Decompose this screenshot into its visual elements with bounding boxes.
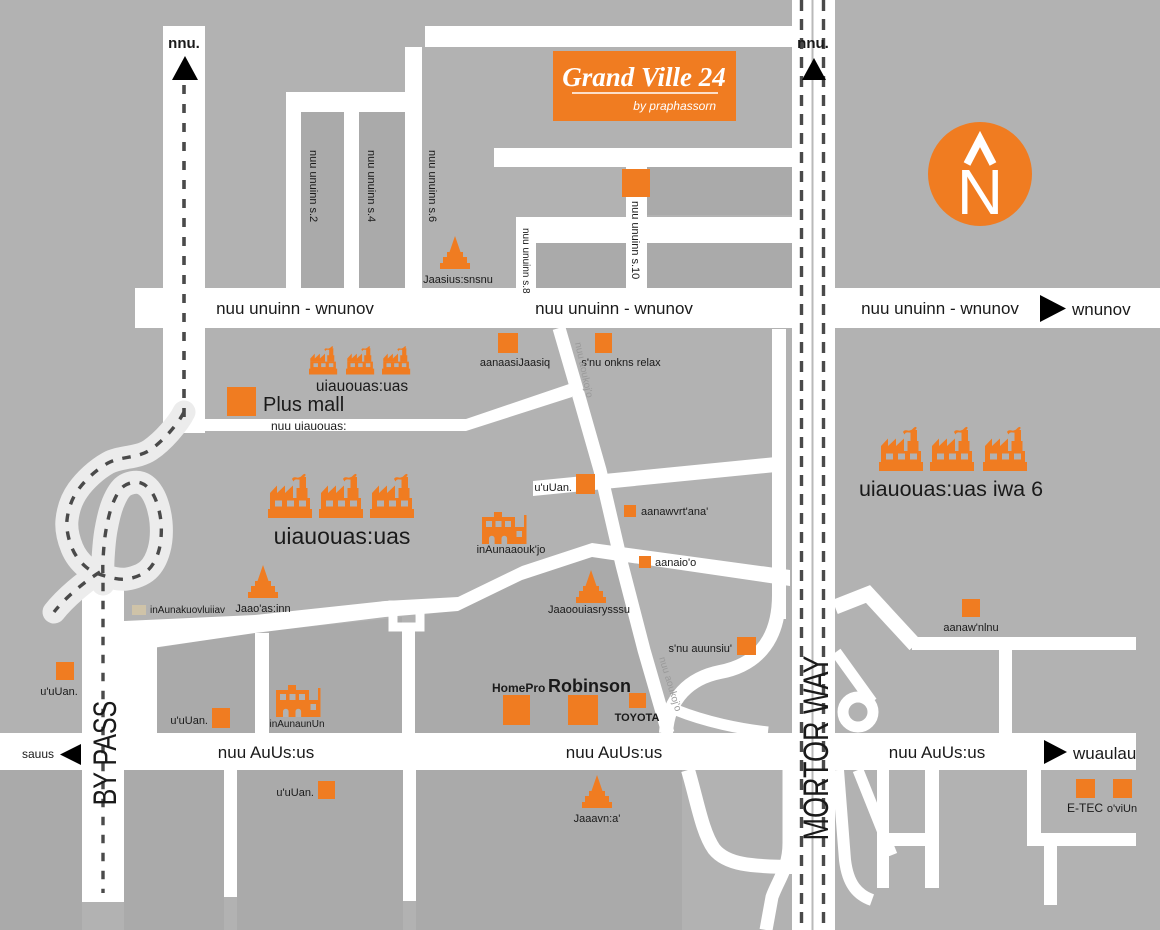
svg-text:nuu AuUs:us: nuu AuUs:us bbox=[218, 743, 314, 762]
svg-text:inAunaaouk'jo: inAunaaouk'jo bbox=[477, 544, 546, 556]
svg-text:uiauouas:uas iwa 6: uiauouas:uas iwa 6 bbox=[859, 477, 1043, 501]
svg-text:aanaw'nlnu: aanaw'nlnu bbox=[943, 622, 998, 634]
svg-text:inAunaunUn: inAunaunUn bbox=[269, 719, 324, 730]
svg-text:Plus mall: Plus mall bbox=[263, 394, 344, 416]
svg-text:nuu uiauouas:: nuu uiauouas: bbox=[271, 419, 346, 433]
svg-text:u'uUan.: u'uUan. bbox=[276, 787, 314, 799]
svg-text:Robinson: Robinson bbox=[548, 676, 631, 696]
svg-text:nuu unuinn s.2: nuu unuinn s.2 bbox=[307, 150, 319, 222]
svg-text:nuu AuUs:us: nuu AuUs:us bbox=[566, 743, 662, 762]
svg-text:u'uUan.: u'uUan. bbox=[170, 715, 208, 727]
svg-text:wuaulau: wuaulau bbox=[1072, 744, 1136, 763]
svg-text:aanaasiJaasiq: aanaasiJaasiq bbox=[480, 357, 550, 369]
svg-text:aanaio'o: aanaio'o bbox=[655, 557, 696, 569]
svg-text:nuu unuinn - wnunov: nuu unuinn - wnunov bbox=[216, 299, 374, 318]
svg-text:N: N bbox=[957, 156, 1003, 228]
svg-text:aanawvrt'ana': aanawvrt'ana' bbox=[641, 506, 708, 518]
svg-text:nnu.: nnu. bbox=[168, 35, 200, 52]
svg-text:nuu unuinn - wnunov: nuu unuinn - wnunov bbox=[861, 299, 1019, 318]
svg-text:u'uUan.: u'uUan. bbox=[534, 482, 572, 494]
svg-text:inAunakuovluiiav: inAunakuovluiiav bbox=[150, 605, 225, 616]
svg-text:o'viUn: o'viUn bbox=[1107, 803, 1137, 815]
svg-text:Jaaoouiasrysssu: Jaaoouiasrysssu bbox=[548, 604, 630, 616]
svg-text:uiauouas:uas: uiauouas:uas bbox=[274, 523, 411, 549]
svg-text:s'nu onkns relax: s'nu onkns relax bbox=[581, 357, 661, 369]
svg-text:by praphassorn: by praphassorn bbox=[633, 99, 716, 113]
svg-text:Jaasius:snsnu: Jaasius:snsnu bbox=[423, 274, 493, 286]
svg-text:nnu.: nnu. bbox=[797, 35, 829, 52]
svg-text:nuu unuinn s.6: nuu unuinn s.6 bbox=[426, 150, 438, 222]
svg-text:Grand Ville 24: Grand Ville 24 bbox=[562, 62, 726, 92]
svg-text:u'uUan.: u'uUan. bbox=[40, 686, 78, 698]
svg-text:nuu unuinn s.8: nuu unuinn s.8 bbox=[520, 228, 531, 294]
svg-text:sauus: sauus bbox=[22, 747, 54, 761]
svg-text:MORTOR WAY: MORTOR WAY bbox=[797, 655, 836, 840]
svg-text:HomePro: HomePro bbox=[492, 681, 545, 695]
svg-text:Jaaavn:a': Jaaavn:a' bbox=[574, 813, 621, 825]
svg-text:nuu unuinn s.4: nuu unuinn s.4 bbox=[365, 150, 377, 222]
svg-text:Jaao'as:inn: Jaao'as:inn bbox=[235, 603, 290, 615]
svg-text:nuu unuinn - wnunov: nuu unuinn - wnunov bbox=[535, 299, 693, 318]
svg-text:nuu unuinn s.10: nuu unuinn s.10 bbox=[629, 201, 641, 279]
svg-text:E-TEC: E-TEC bbox=[1067, 801, 1103, 815]
svg-text:wnunov: wnunov bbox=[1071, 300, 1131, 319]
svg-text:BY PASS: BY PASS bbox=[88, 701, 124, 806]
svg-text:s'nu auunsiu': s'nu auunsiu' bbox=[668, 643, 732, 655]
svg-text:nuu AuUs:us: nuu AuUs:us bbox=[889, 743, 985, 762]
svg-text:uiauouas:uas: uiauouas:uas bbox=[316, 378, 408, 395]
svg-text:TOYOTA: TOYOTA bbox=[615, 712, 660, 724]
